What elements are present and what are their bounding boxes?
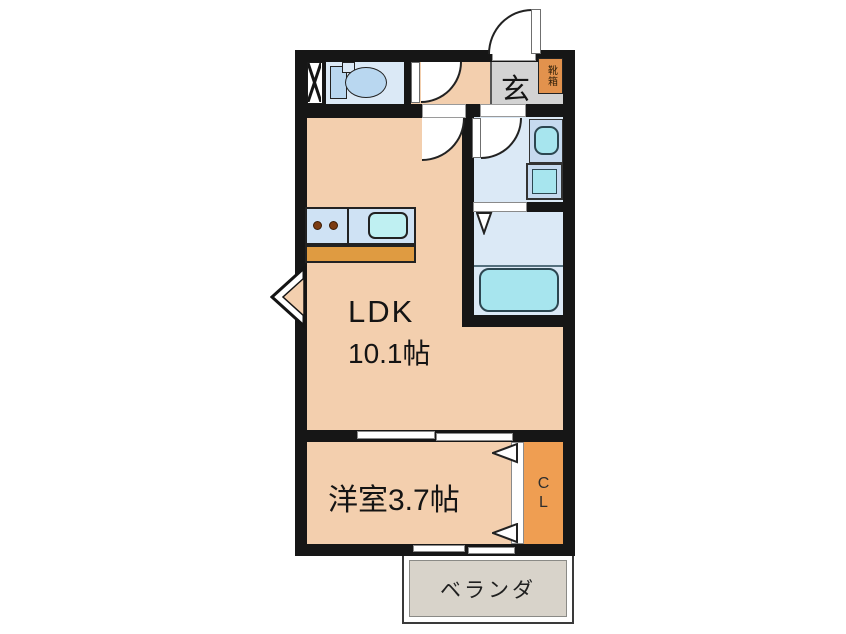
ldk-size-label: 10.1帖 <box>348 332 431 372</box>
pipe-shaft-icon <box>307 62 323 104</box>
ldk-doorway <box>422 104 466 118</box>
stove-burner-icon <box>313 221 322 230</box>
bathroom-divider-line <box>474 265 563 267</box>
veranda: ベランダ <box>402 553 574 624</box>
closet-label: C L <box>538 474 550 512</box>
toilet-bowl-icon <box>345 67 387 98</box>
ldk-room <box>307 118 462 430</box>
floor-plan: ベランダ 玄 靴箱 <box>0 0 846 634</box>
room-divider-sliding-door-icon <box>357 431 435 439</box>
veranda-label: ベランダ <box>440 574 536 604</box>
closet: C L <box>524 442 563 544</box>
shoe-cabinet: 靴箱 <box>538 58 563 94</box>
entrance-step-line <box>490 62 492 104</box>
stove-burner-icon <box>329 221 338 230</box>
kitchen-sink-icon <box>368 212 408 239</box>
washbasin-icon <box>534 126 559 155</box>
bathtub-icon <box>479 268 559 312</box>
room-divider-sliding-door-icon <box>436 433 513 441</box>
balcony-window-icon <box>413 545 465 552</box>
entrance-label: 玄 <box>501 66 530 108</box>
closet-door-triangle-icon <box>492 443 519 464</box>
bay-window-icon <box>270 266 306 329</box>
front-door-icon <box>531 9 541 54</box>
ldk-label-group: LDK 10.1帖 <box>348 294 431 372</box>
washroom-doorway <box>480 104 526 117</box>
ldk-label: LDK <box>348 294 431 330</box>
toilet-door-icon <box>411 62 420 103</box>
balcony-window-icon <box>468 547 515 554</box>
kitchen-counter-front <box>305 245 416 263</box>
ldk-room-lower <box>462 327 563 430</box>
front-door-swing-icon <box>488 9 532 54</box>
shoe-cabinet-label: 靴箱 <box>546 65 556 87</box>
bathroom-door-triangle-icon <box>476 212 493 235</box>
washroom-door-icon <box>472 118 481 158</box>
washing-machine-icon <box>532 169 557 194</box>
bathroom-sliding-door-icon <box>473 202 527 212</box>
western-room-label: 洋室3.7帖 <box>328 475 460 519</box>
closet-door-triangle-icon <box>492 523 519 544</box>
